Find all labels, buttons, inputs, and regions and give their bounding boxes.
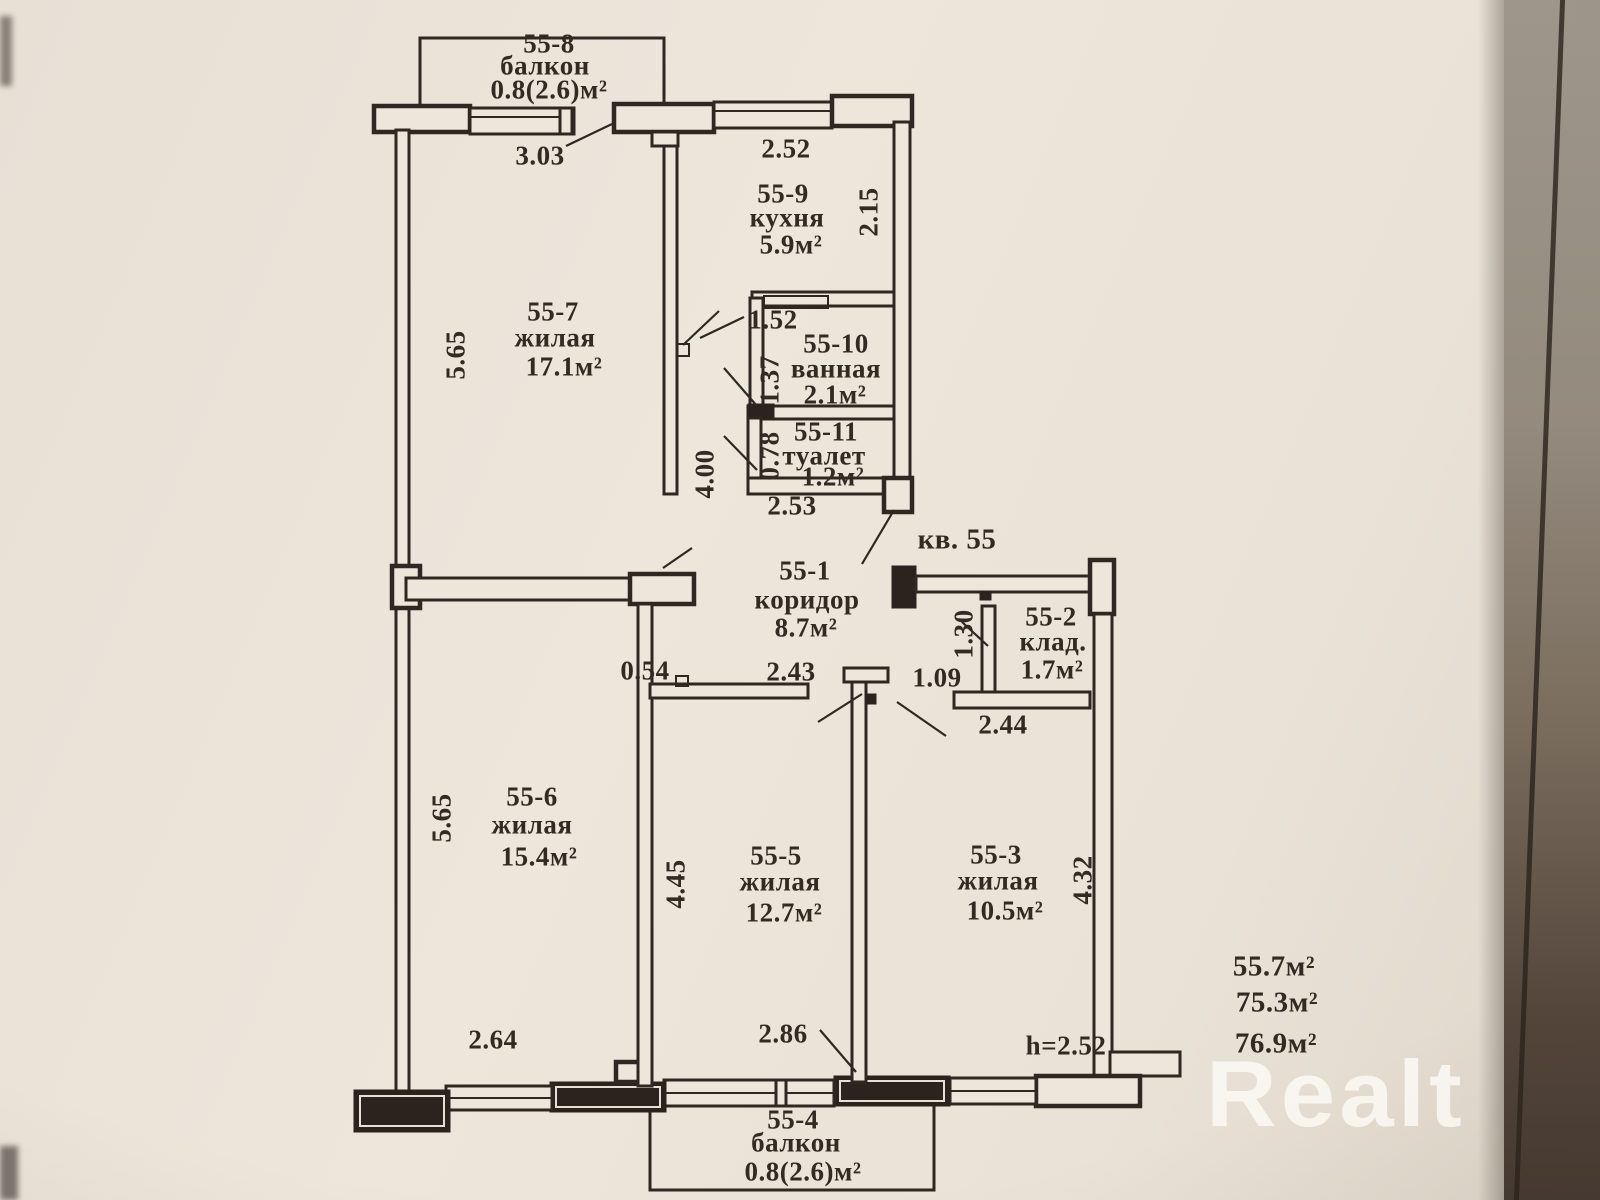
- floor-plan-photo: 55-8 балкон 0.8(2.6)м² 55-9 кухня 5.9м² …: [0, 0, 1600, 1200]
- label-dim-wall-stub: 0.54: [620, 656, 669, 687]
- label-apartment-number: кв. 55: [918, 524, 997, 557]
- interior-walls: [406, 146, 1090, 1086]
- label-room-55-5-area: 12.7м²: [746, 898, 823, 929]
- label-dim-partition-length: 4.00: [690, 449, 721, 498]
- label-dim-room6-depth: 5.65: [427, 793, 458, 842]
- label-room-55-8-area: 0.8(2.6)м²: [491, 75, 608, 106]
- label-dim-bath-depth: 1.37: [755, 355, 786, 404]
- photo-edge-shadow-bottom: [0, 1146, 18, 1200]
- label-dim-storage-depth: 1.30: [949, 609, 980, 658]
- label-room-55-3-area: 10.5м²: [967, 896, 1044, 927]
- label-room-55-11-area: 1.2м²: [802, 462, 865, 493]
- label-room-55-1-name: коридор: [755, 585, 860, 616]
- label-dim-room7-depth: 5.65: [441, 330, 472, 379]
- label-dim-room5-depth: 4.45: [661, 859, 692, 908]
- label-room-55-3-name: жилая: [958, 866, 1039, 897]
- label-room-55-6-number: 55-6: [506, 782, 558, 813]
- bottom-wall: [354, 1062, 1140, 1132]
- label-room-55-6-name: жилая: [492, 810, 573, 841]
- label-room-55-4-area: 0.8(2.6)м²: [745, 1157, 862, 1188]
- label-dim-kitchen-width: 2.52: [761, 134, 810, 165]
- label-room-55-7-area: 17.1м²: [526, 352, 603, 383]
- label-total-area-usable: 75.3м²: [1236, 987, 1318, 1020]
- label-room-55-4-name: балкон: [751, 1128, 841, 1159]
- label-room-55-5-name: жилая: [740, 867, 821, 898]
- label-room-55-1-area: 8.7м²: [775, 613, 838, 644]
- realt-watermark: Realt: [1206, 1040, 1466, 1148]
- label-dim-balcony-top-width: 3.03: [515, 141, 564, 172]
- label-dim-entry-width: 1.09: [912, 663, 961, 694]
- label-dim-room6-width: 2.64: [468, 1025, 517, 1056]
- label-dim-room3-depth: 4.32: [1068, 855, 1099, 904]
- label-ceiling-height: h=2.52: [1026, 1031, 1107, 1062]
- label-room-55-7-name: жилая: [515, 323, 596, 354]
- label-dim-room5-bottom-width: 2.86: [758, 1019, 807, 1050]
- label-room-55-1-number: 55-1: [779, 556, 831, 587]
- label-dim-corridor-width: 2.53: [767, 491, 816, 522]
- label-dim-wc-depth: 0.78: [755, 431, 786, 480]
- photo-edge-shadow-top: [0, 16, 12, 86]
- label-room-55-10-area: 2.1м²: [804, 380, 867, 411]
- label-room-55-6-area: 15.4м²: [501, 842, 578, 873]
- label-room-55-2-name: клад.: [1019, 627, 1086, 658]
- label-room-55-2-area: 1.7м²: [1021, 655, 1084, 686]
- label-dim-bath-width: 1.52: [748, 305, 797, 336]
- label-total-area-living: 55.7м²: [1233, 951, 1315, 984]
- label-room-55-9-area: 5.9м²: [760, 230, 823, 261]
- photo-background: [1504, 0, 1600, 1200]
- label-dim-kitchen-depth: 2.15: [854, 187, 885, 236]
- label-dim-storage-width: 2.44: [978, 710, 1027, 741]
- label-dim-room5-top-width: 2.43: [766, 657, 815, 688]
